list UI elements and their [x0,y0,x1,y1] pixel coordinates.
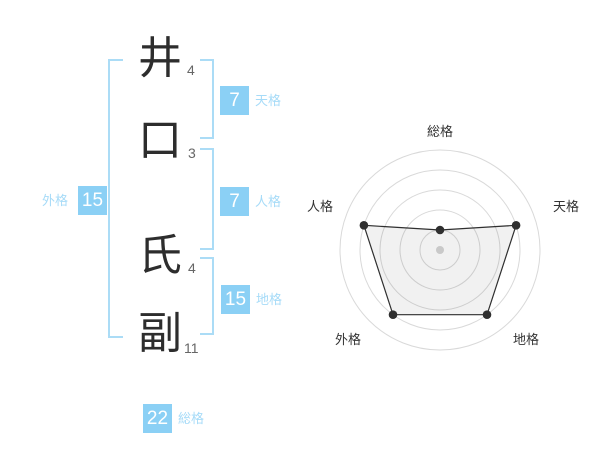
name-character-3: 氏 [125,234,195,278]
radar-axis-label-soukaku: 総格 [427,124,453,139]
radar-chart: 総格 天格 地格 外格 人格 [290,112,600,362]
radar-axis-label-jinkaku: 人格 [307,199,333,214]
stroke-count-1: 4 [187,63,195,77]
radar-polygon [364,225,516,314]
stroke-count-4: 11 [184,341,199,355]
tenkaku-bracket [200,59,214,139]
tenkaku-value-box: 7 [220,86,249,115]
radar-center-dot [436,246,444,254]
gaikaku-label: 外格 [42,186,68,215]
stroke-count-2: 3 [188,146,196,160]
name-character-2: 口 [125,119,195,163]
soukaku-value-box: 22 [143,404,172,433]
name-analysis-panel: 井 4 口 3 氏 4 副 11 7 天格 7 人格 15 地格 外格 15 2… [0,0,600,470]
jinkaku-label: 人格 [255,187,281,216]
chikaku-label: 地格 [256,285,282,314]
soukaku-label: 総格 [178,404,204,433]
name-character-1: 井 [125,37,195,81]
radar-axis-label-chikaku: 地格 [513,332,539,347]
jinkaku-value-box: 7 [220,187,249,216]
tenkaku-label: 天格 [255,86,281,115]
gaikaku-value-box: 15 [78,186,107,215]
jinkaku-bracket [200,148,214,250]
gaikaku-bracket [108,59,123,338]
stroke-count-3: 4 [188,261,196,275]
chikaku-bracket [200,257,214,335]
chikaku-value-box: 15 [221,285,250,314]
radar-axis-label-tenkaku: 天格 [553,199,579,214]
radar-axis-label-gaikaku: 外格 [335,332,361,347]
